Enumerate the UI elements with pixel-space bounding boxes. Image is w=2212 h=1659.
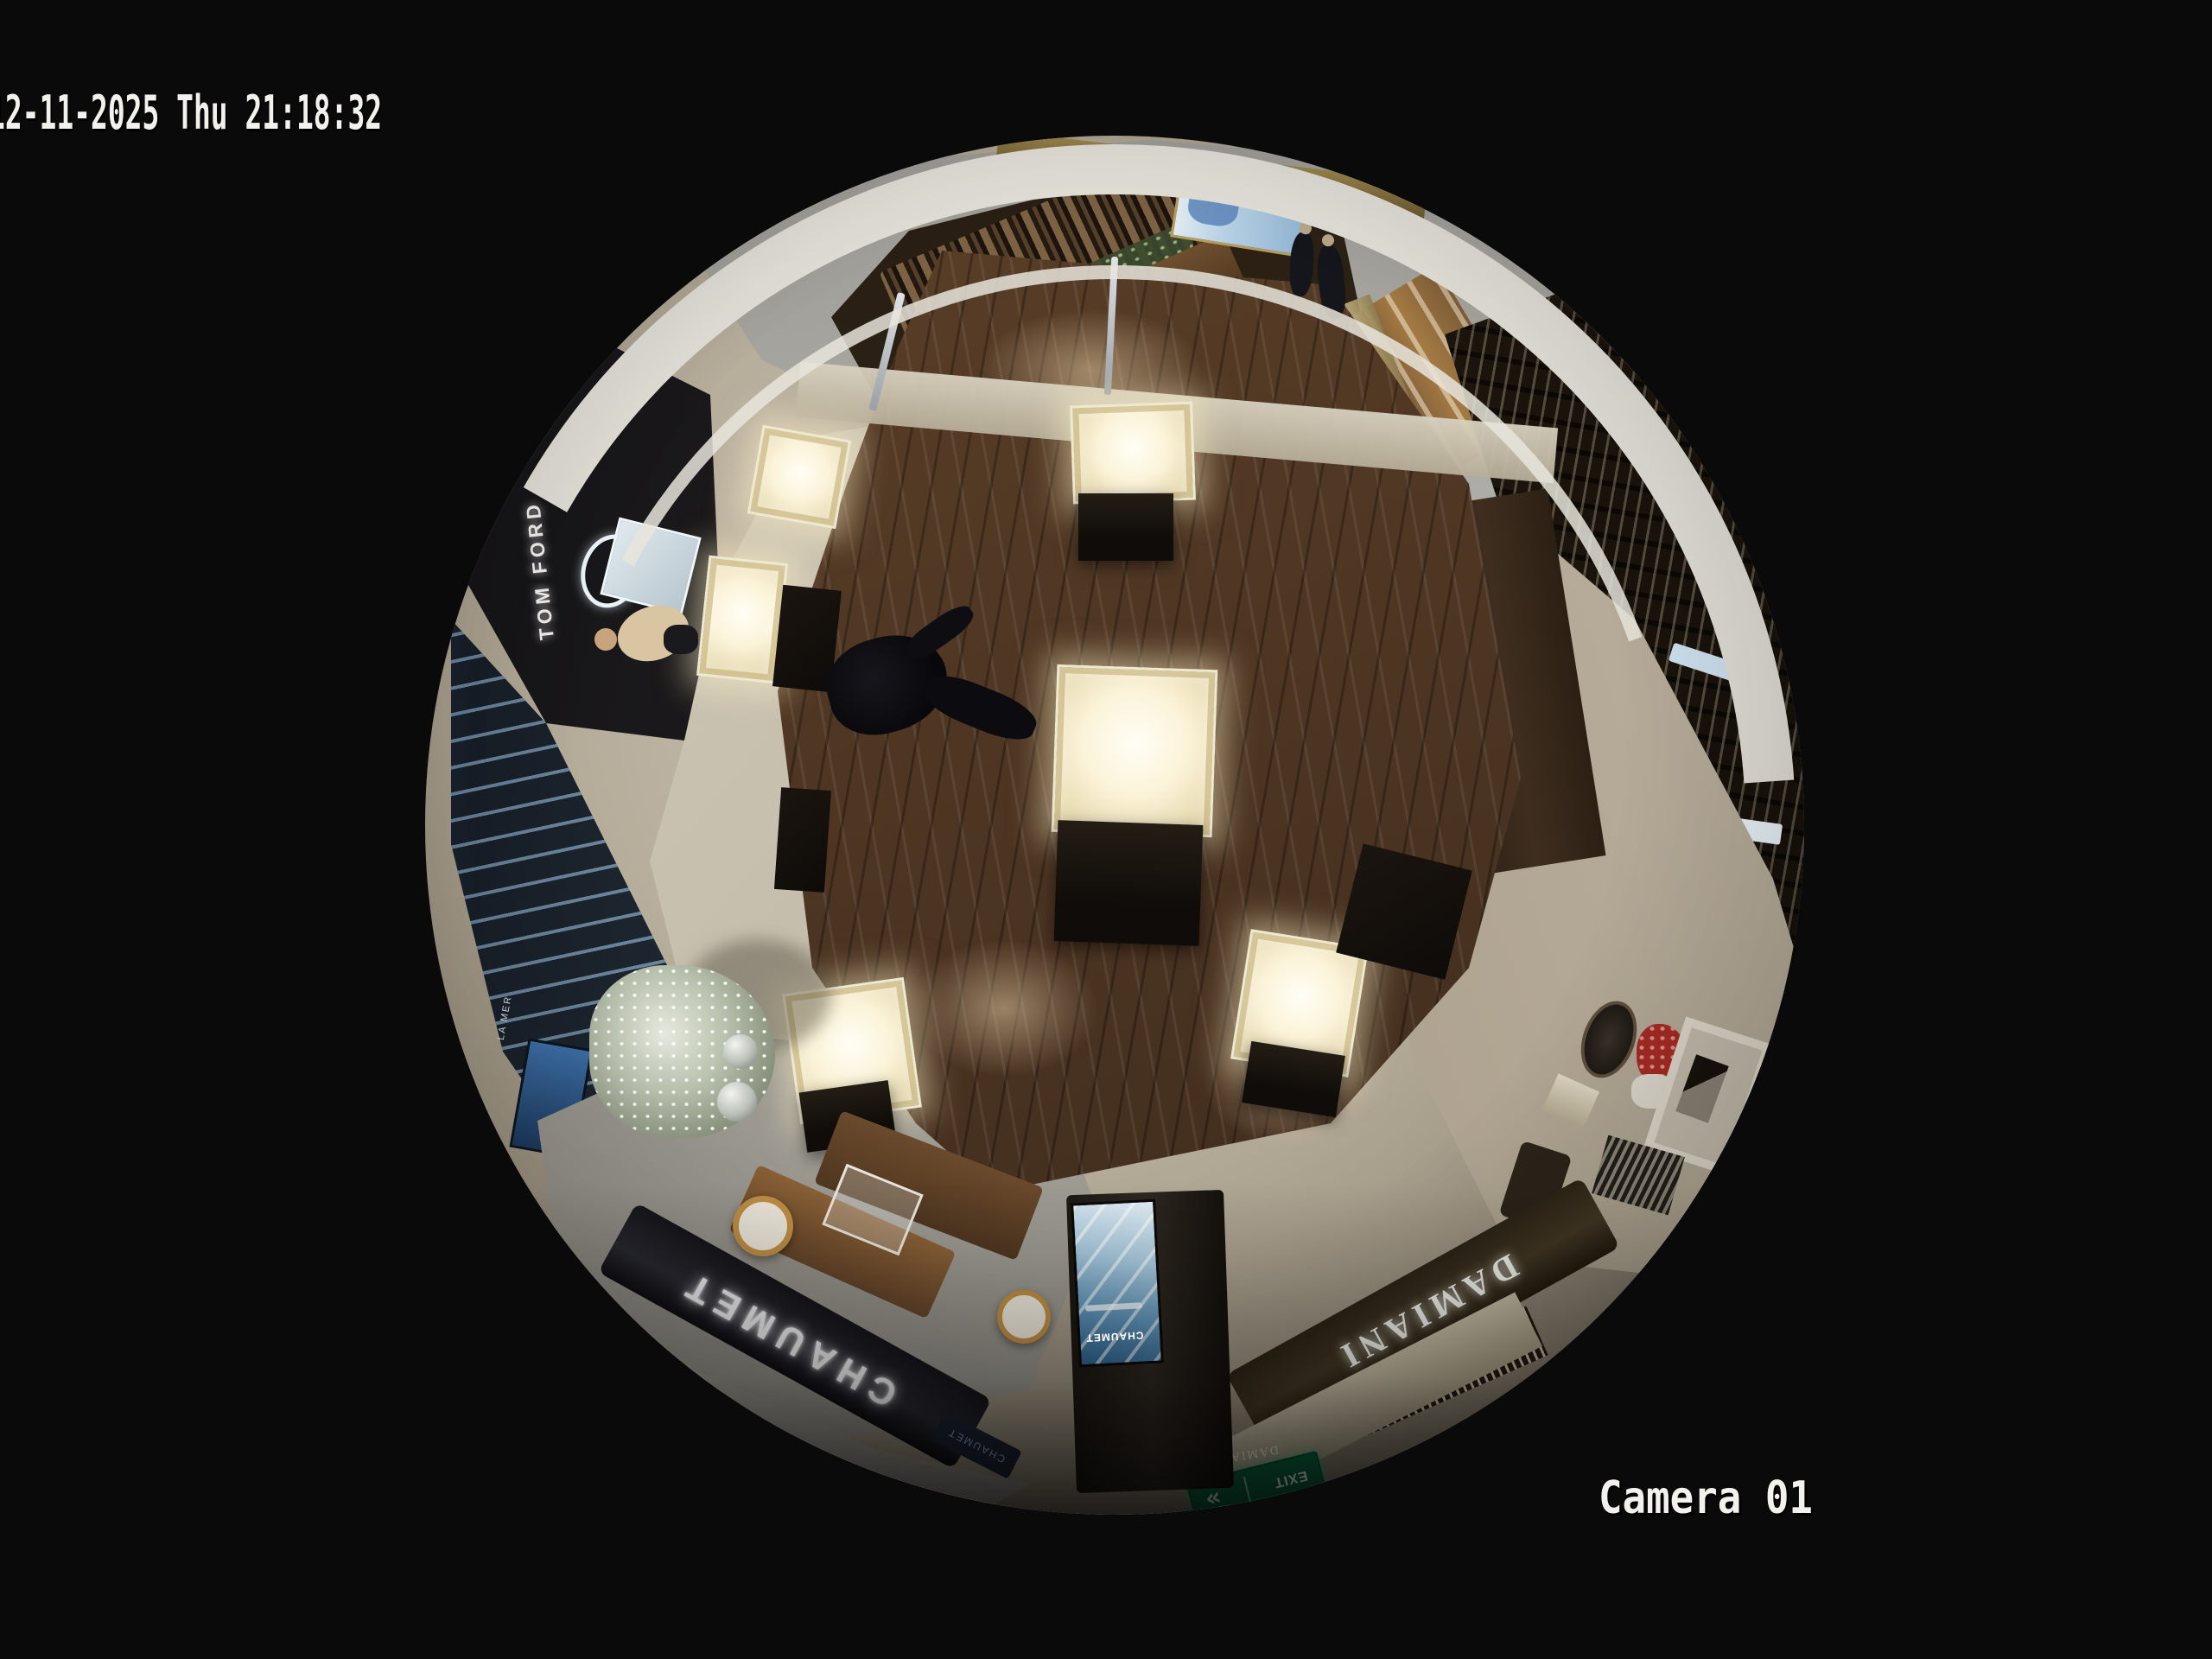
floor-light-pool	[909, 939, 1099, 1077]
fisheye-camera-view: LA MER TOM FORD	[425, 136, 1804, 1515]
brass-ring-stool	[733, 1196, 793, 1256]
silver-bauble	[717, 1082, 757, 1122]
osd-camera-label: Camera 01	[1599, 1476, 1813, 1521]
exit-sign-label: EXIT	[1272, 1467, 1309, 1491]
slat-gap-light	[1677, 172, 1739, 225]
osd-timestamp: 12-11-2025 Thu 21:18:32	[0, 90, 382, 137]
shopper-bag	[664, 625, 698, 654]
brass-ring-stool	[997, 1290, 1051, 1344]
shopper-head	[594, 628, 617, 651]
vitrine-plinth	[1054, 820, 1204, 946]
exit-sign-divider	[1243, 1476, 1251, 1502]
display-cube	[774, 787, 831, 893]
silver-bauble	[723, 1034, 758, 1069]
